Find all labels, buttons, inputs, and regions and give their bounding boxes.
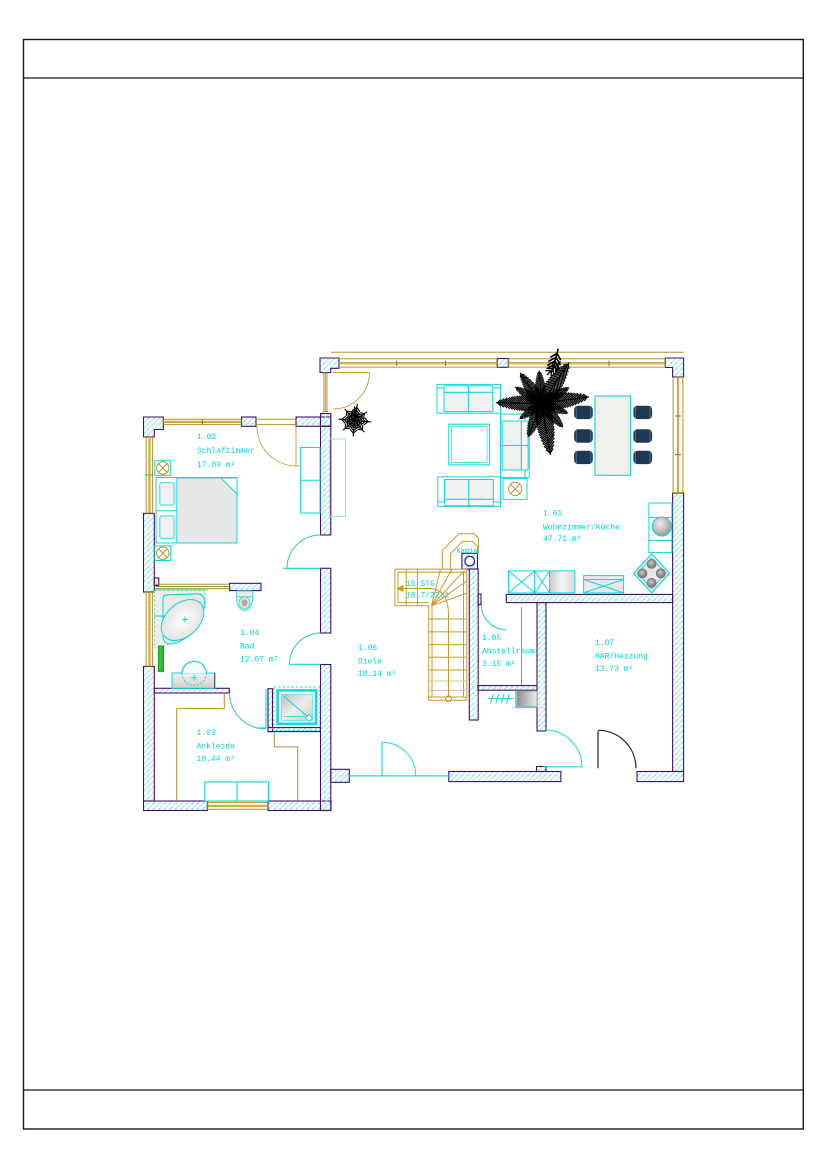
svg-text:1.05: 1.05 <box>482 634 501 643</box>
svg-text:15 STG: 15 STG <box>406 580 435 589</box>
svg-text:Bad: Bad <box>240 643 255 652</box>
svg-text:1.04: 1.04 <box>240 629 259 638</box>
svg-text:1.06: 1.06 <box>358 644 377 653</box>
svg-text:17.09 m²: 17.09 m² <box>197 461 235 470</box>
svg-text:Abstellraum: Abstellraum <box>482 647 535 656</box>
svg-text:13.73 m²: 13.73 m² <box>595 665 633 674</box>
svg-text:3.15 m²: 3.15 m² <box>482 660 516 669</box>
svg-text:Wohnzimmer/Küche: Wohnzimmer/Küche <box>543 524 620 533</box>
svg-text:1.01: 1.01 <box>543 510 562 519</box>
svg-text:1.07: 1.07 <box>595 639 614 648</box>
svg-text:Diele: Diele <box>358 657 382 666</box>
svg-text:10.44 m²: 10.44 m² <box>197 755 235 764</box>
svg-text:Schlafzimmer: Schlafzimmer <box>197 447 255 456</box>
svg-text:Ankleide: Ankleide <box>197 742 236 751</box>
svg-text:18.7/22.1: 18.7/22.1 <box>406 592 449 601</box>
svg-text:47.71 m²: 47.71 m² <box>543 535 581 544</box>
svg-text:Kamin: Kamin <box>457 548 478 556</box>
svg-text:18.14 m²: 18.14 m² <box>358 670 396 679</box>
svg-text:1.03: 1.03 <box>197 729 216 738</box>
svg-text:1.02: 1.02 <box>197 433 216 442</box>
svg-text:12.07 m²: 12.07 m² <box>240 655 278 664</box>
svg-text:HAR/Heizung: HAR/Heizung <box>595 652 648 661</box>
